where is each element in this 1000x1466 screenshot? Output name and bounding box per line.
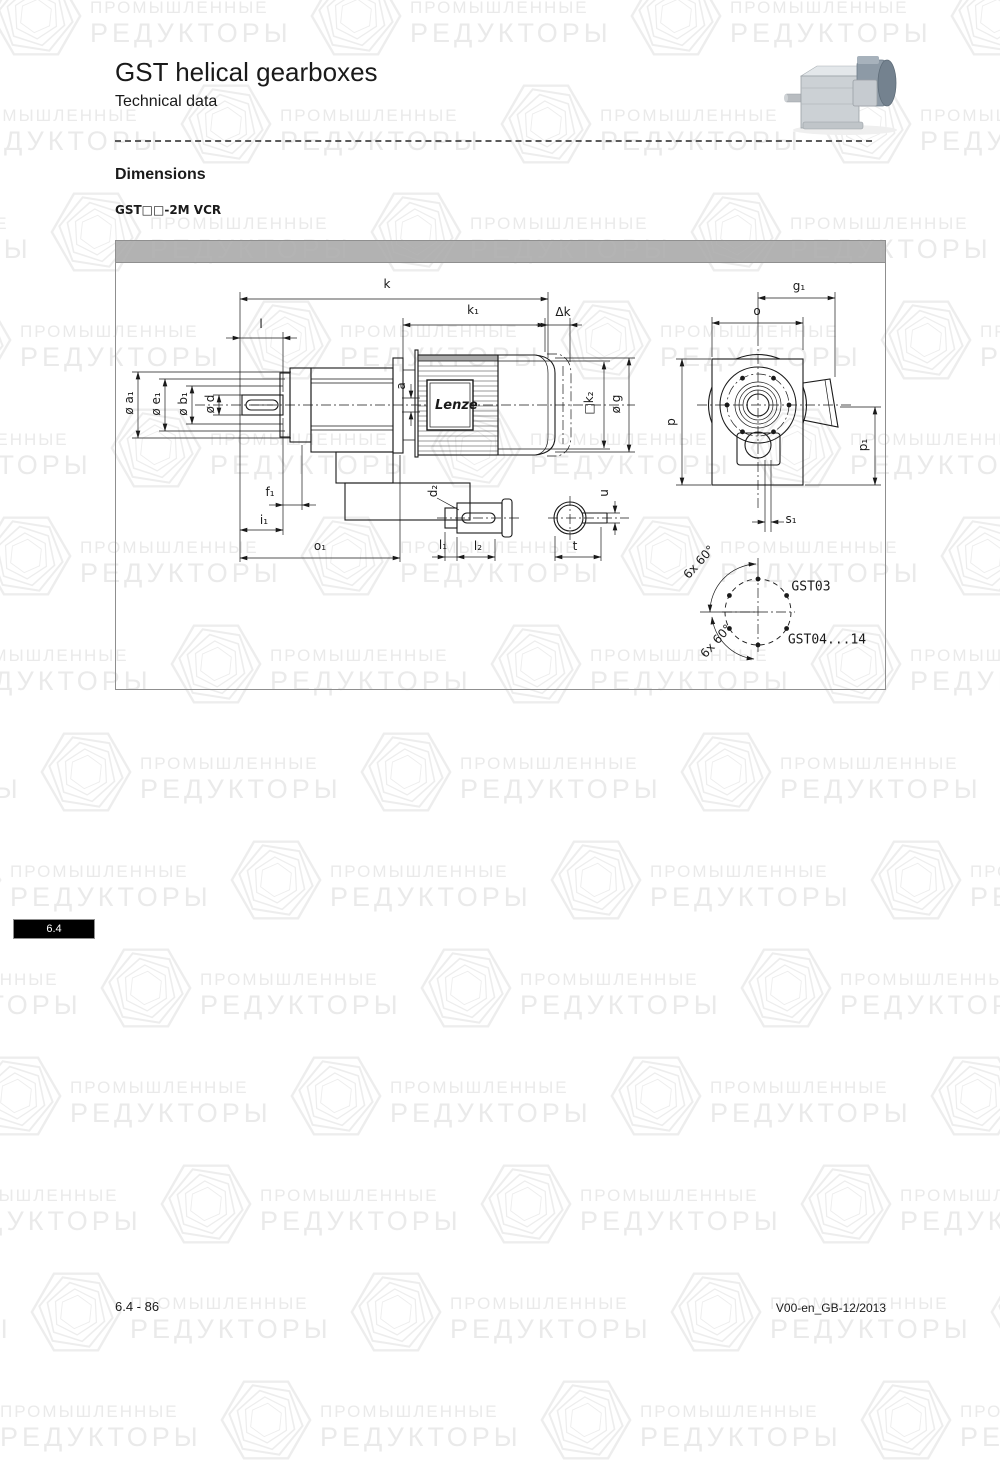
watermark-line2: РЕДУКТОРЫ	[0, 1422, 202, 1453]
watermark-line2: РЕДУКТОРЫ	[960, 1422, 1000, 1453]
side-view	[195, 350, 635, 520]
bolt-circle-detail	[700, 558, 795, 659]
bore-section-detail	[548, 496, 629, 561]
watermark-line1: ПРОМЫШЛЕННЫЕ	[320, 1402, 522, 1422]
torque-arm	[803, 379, 838, 427]
end-view	[676, 292, 881, 532]
dashed-divider	[115, 140, 872, 142]
page-title: GST helical gearboxes	[115, 57, 378, 88]
gearbox-photo	[783, 42, 908, 137]
lenze-nameplate	[427, 380, 473, 430]
watermark-line2: РЕДУКТОРЫ	[320, 1422, 522, 1453]
watermark-line1: ПРОМЫШЛЕННЫЕ	[960, 1402, 1000, 1422]
watermark-line2: РЕДУКТОРЫ	[640, 1422, 842, 1453]
footer-document-id: V00-en_GB-12/2013	[0, 1301, 886, 1315]
watermark-line1: ПРОМЫШЛЕННЫЕ	[640, 1402, 842, 1422]
model-label: GST□□-2M VCR	[115, 203, 221, 217]
technical-drawing	[115, 240, 886, 690]
page-subtitle: Technical data	[115, 93, 217, 111]
catalog-page: { "page": { "title": "GST helical gearbo…	[0, 0, 1000, 1395]
page-tab: 6.4	[13, 919, 95, 939]
section-heading: Dimensions	[115, 166, 206, 184]
side-view-dimensions	[132, 292, 635, 562]
watermark-line1: ПРОМЫШЛЕННЫЕ	[0, 1402, 202, 1422]
bushing-detail	[432, 498, 521, 561]
